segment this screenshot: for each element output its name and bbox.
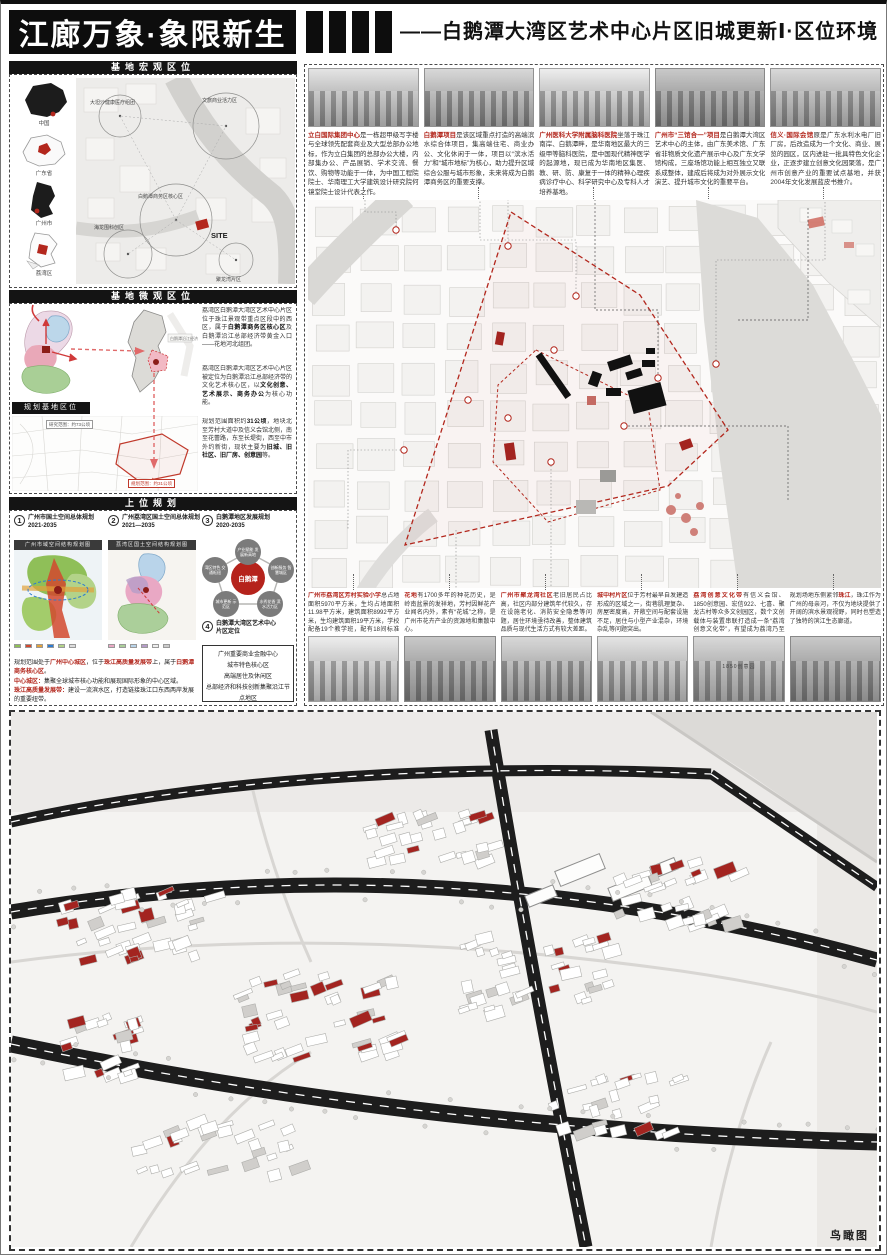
leader-line	[708, 187, 709, 201]
caption: 规划场地东侧紧邻珠江，珠江作为广州的母亲河，不仅为地块提供了开阔的滨水景观视野，…	[790, 592, 881, 634]
photo-fangcun-school	[308, 636, 399, 702]
macro-label: 白鹅潭商务区核心区	[138, 193, 183, 200]
photo-three-halls	[655, 68, 766, 127]
aerial-panel: 鸟瞰图	[9, 710, 881, 1251]
section-title-macro-location: 基地宏观区位	[9, 61, 297, 74]
guangzhou-map	[13, 178, 73, 220]
photo-brain-hospital	[539, 68, 650, 127]
photo-flower-market-aerial	[404, 636, 495, 702]
leader-line	[641, 574, 642, 590]
item-title: 白鹅潭大湾区艺术中心	[216, 621, 276, 629]
item-number: 3	[202, 515, 213, 526]
item-number: 2	[108, 515, 119, 526]
item-number: 4	[202, 621, 213, 632]
item-years: 2021—2035	[122, 523, 200, 531]
macro-label: 聚龙湾片区	[216, 276, 241, 283]
plan-item-3: 3 白鹅潭地区发展规划 2020-2035	[202, 515, 294, 531]
note-line: 规划范围处于广州中心城区，位于珠江高质量发展带上，属于白鹅潭商务核心区。	[14, 659, 196, 678]
macro-label: 海龙围科创区	[94, 224, 124, 231]
position-line: 城市特色核心区	[205, 661, 291, 672]
diagram-node: 水秀花香 滨水活力区	[257, 591, 283, 617]
position-line: 总部经济和科技创新集聚沿江节点地区	[205, 683, 291, 702]
header-bar-icon	[375, 11, 392, 53]
bottom-caption-row: 广州市荔湾区芳村实验小学总占地面积5970平方米，生均占地面积11.98平方米，…	[308, 592, 881, 634]
map1-legend	[14, 644, 102, 648]
site-label: SITE	[211, 231, 228, 240]
plan-item-1: 1 广州市国土空间总体规划 2021-2035	[14, 515, 104, 531]
macro-location-panel: 中国 广东省 广州市 荔湾区	[9, 74, 297, 288]
note-line: 中心城区：集聚全球城市核心功能和展现国际形象的中心区域。	[14, 678, 196, 687]
map2-title: 荔湾区国土空间结构规划图	[108, 540, 196, 550]
inset-caption: 广东省	[13, 170, 75, 178]
leader-line	[478, 187, 479, 201]
leader-line	[593, 187, 594, 201]
china-map	[13, 78, 73, 120]
header-bar-icon	[306, 11, 323, 53]
photo-xinyi-hall	[770, 68, 881, 127]
svg-text:白鹅潭沿江经济带: 白鹅潭沿江经济带	[170, 335, 198, 341]
aerial-view-illustration	[11, 712, 877, 1247]
leader-line	[833, 574, 834, 590]
base-location-tag: 规划基地区位	[12, 402, 90, 414]
item-subtitle: 片区定位	[216, 629, 276, 637]
plan-item-4: 4 白鹅潭大湾区艺术中心 片区定位	[202, 621, 294, 637]
site-context-map	[308, 200, 881, 588]
caption: 城中村片区位于芳村最早自发建造形成的区域之一，街巷肌理复杂、房屋密度高，开敞空间…	[597, 592, 688, 634]
photo-baietan-aerial	[424, 68, 535, 127]
inset-map-strip: 中国 广东省 广州市 荔湾区	[13, 78, 75, 284]
liwan-structure-map	[108, 550, 196, 640]
leader-line	[353, 574, 354, 590]
study-scope-note: 研究范围：约73公顷	[46, 420, 93, 429]
base-location-map: 研究范围：约73公顷 规划范围：约31公顷	[12, 416, 198, 491]
macro-city-map: 大坦沙健康医疗组团 文旅商业活力区 白鹅潭商务区核心区 聚龙湾片区 海龙围科创区…	[76, 78, 295, 284]
plan-scope-note: 规划范围：约31公顷	[128, 479, 175, 488]
top-caption-row: 立白国际集团中心是一栋超甲级写字楼与全球领先配套商业及大型总部办公地标，作为立白…	[308, 131, 881, 195]
baietan-diagram: 白鹅潭 产业赋能 发展新高地 创新服务 智慧城区 水秀花香 滨水活力区 城市更新…	[202, 538, 294, 618]
item-title: 广州荔湾区国土空间总体规划	[122, 515, 200, 523]
inset-caption: 广州市	[13, 220, 75, 228]
diagram-node: 湾区特色 交通枢纽	[202, 557, 228, 583]
caption: 立白国际集团中心是一栋超甲级写字楼与全球领先配套商业及大型总部办公地标，作为立白…	[308, 131, 419, 195]
caption: 信义·国际会馆原是广东水利水电厂旧厂房，后改造成为一个文化、商业、展览的园区，区…	[770, 131, 881, 195]
plan-item-2: 2 广州荔湾区国土空间总体规划 2021—2035	[108, 515, 200, 531]
bottom-photo-strip: 1850创意园	[308, 636, 881, 702]
board-main-title: ——白鹅潭大湾区艺术中心片区旧城更新Ⅰ·区位环境	[400, 15, 884, 49]
diagram-center: 白鹅潭	[231, 561, 265, 595]
caption: 广州市荔湾区芳村实验小学总占地面积5970平方米，生均占地面积11.98平方米，…	[308, 592, 399, 634]
board-logo-title: 江廊万象·象限新生	[9, 10, 296, 54]
photo-urban-village-street	[597, 636, 688, 702]
micro-district-map: 白鹅潭沿江经济带	[106, 306, 198, 398]
position-line: 高端居住及休闲区	[205, 672, 291, 683]
leader-line	[449, 574, 450, 590]
micro-planning-map	[12, 306, 104, 398]
caption: 广州医科大学附属脑科医院坐落于珠江南岸、白鹅潭畔，是华南地区最大的三级甲等脑科医…	[539, 131, 650, 195]
liwan-map	[13, 228, 73, 270]
diagram-node: 产业赋能 发展新高地	[235, 539, 261, 565]
header-bar-icon	[329, 11, 346, 53]
guangdong-map	[13, 128, 73, 170]
presentation-board: 江廊万象·象限新生 ——白鹅潭大湾区艺术中心片区旧城更新Ⅰ·区位环境 基地宏观区…	[0, 0, 887, 1255]
base-paragraph: 规划范围面积约31公顷，地块北至芳村大道中及信义会馆北侧，南至花蕾路，东至长堤街…	[202, 418, 292, 488]
header-bars	[306, 11, 398, 53]
macro-label: 文旅商业活力区	[202, 97, 237, 104]
item-title: 广州市国土空间总体规划	[28, 515, 94, 523]
aerial-view-label: 鸟瞰图	[830, 1227, 869, 1243]
header-bar-icon	[352, 11, 369, 53]
caption: 广州市聚龙湾社区老旧居民占比高，社区内部分建筑年代较久，存在设施老化、消防安全隐…	[501, 592, 592, 634]
position-box: 广州重要商业金融中心 城市特色核心区 高端居住及休闲区 总部经济和科技创新集聚沿…	[202, 645, 294, 702]
inset-caption: 中国	[13, 120, 75, 128]
item-number: 1	[14, 515, 25, 526]
macro-label: 大坦沙健康医疗组团	[90, 99, 135, 106]
leader-line	[737, 574, 738, 590]
photo-old-community-aerial	[501, 636, 592, 702]
micro-paragraph-2: 荔湾区白鹅潭大湾区艺术中心片区被定位为白鹅潭沿江总部经济带的文化艺术核心区，以文…	[202, 365, 292, 413]
item-years: 2021-2035	[28, 523, 94, 531]
micro-paragraph-1: 荔湾区白鹅潭大湾区艺术中心片区位于珠江景观带重点区段中的西区，属于白鹅潭商务区核…	[202, 307, 292, 361]
guangzhou-structure-map	[14, 550, 102, 640]
photo-sign-text: 1850创意园	[694, 663, 783, 670]
leader-line	[545, 574, 546, 590]
leader-line	[363, 187, 364, 201]
item-title: 白鹅潭地区发展规划	[216, 515, 270, 523]
inset-caption: 荔湾区	[13, 270, 75, 278]
photo-pearl-river-aerial	[790, 636, 881, 702]
item-years: 2020-2035	[216, 523, 270, 531]
position-line: 广州重要商业金融中心	[205, 650, 291, 661]
photo-liby-tower	[308, 68, 419, 127]
leader-line	[823, 187, 824, 201]
diagram-node: 城市更新 示范区	[213, 591, 239, 617]
upper-planning-notes: 规划范围处于广州中心城区，位于珠江高质量发展带上，属于白鹅潭商务核心区。 中心城…	[14, 659, 196, 704]
caption: 广州市“三馆合一”项目是白鹅潭大湾区艺术中心的主体，由广东美术馆、广东省非物质文…	[655, 131, 766, 195]
photo-1850-sign: 1850创意园	[693, 636, 784, 702]
caption: 白鹅潭项目是该区域重点打造的高端滨水综合体项目，集高端住宅、商业办公、文化休闲于…	[424, 131, 535, 195]
section-title-micro-location: 基地微观区位	[9, 290, 297, 303]
map1-title: 广州市域空间结构规划图	[14, 540, 102, 550]
diagram-node: 创新服务 智慧城区	[268, 557, 294, 583]
section-title-upper-planning: 上位规划	[9, 497, 297, 510]
map2-legend	[108, 644, 196, 648]
caption: 荔湾创意文化带有信义会馆、1850创意园、宏信922、七喜、聚龙古村等众多文创园…	[693, 592, 784, 634]
top-photo-strip	[308, 68, 881, 127]
caption: 花地有1700多年的种花历史，是岭南盆景的发祥地，芳村因鲜花产业闻名内外，素有“…	[404, 592, 495, 634]
note-line: 珠江高质量发展带：建设一流滨水区，打造链接珠江口东西两岸发展的重要纽带。	[14, 687, 196, 704]
